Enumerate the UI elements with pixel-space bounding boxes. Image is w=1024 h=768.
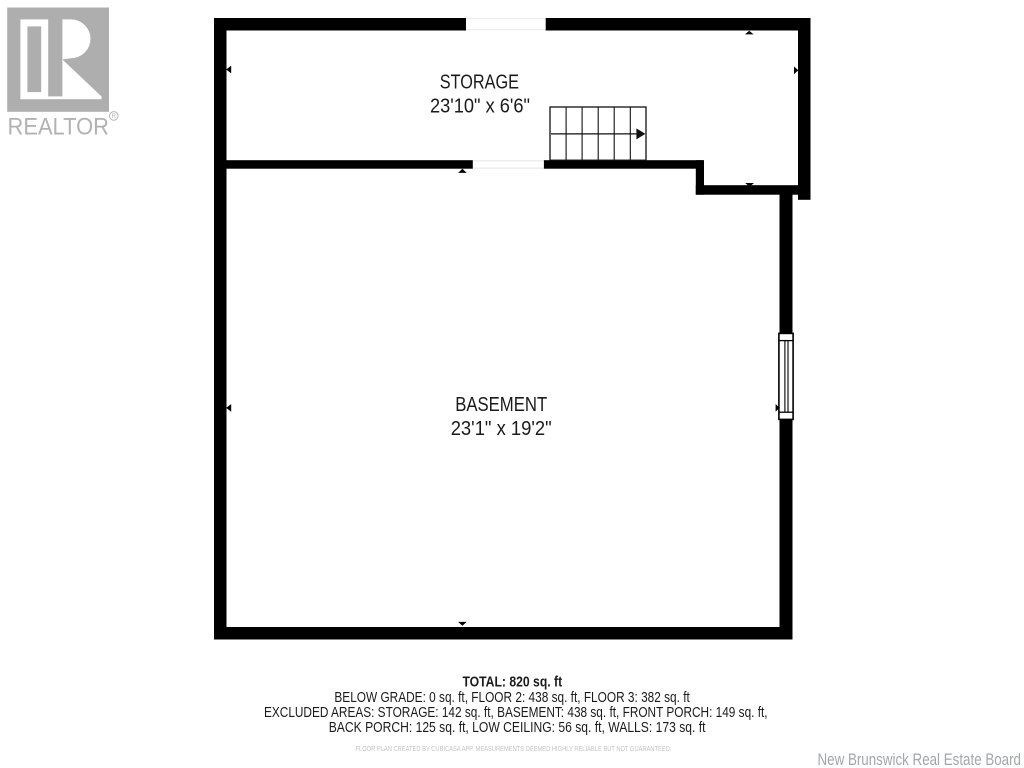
svg-text:23'10" x 6'6": 23'10" x 6'6" — [430, 96, 530, 118]
svg-text:BELOW GRADE: 0 sq. ft, FLOOR 2: BELOW GRADE: 0 sq. ft, FLOOR 2: 438 sq. … — [334, 690, 689, 706]
svg-text:BACK PORCH: 125 sq. ft, LOW CE: BACK PORCH: 125 sq. ft, LOW CEILING: 56 … — [329, 720, 706, 736]
svg-text:BASEMENT: BASEMENT — [455, 394, 547, 416]
svg-text:TOTAL: 820 sq. ft: TOTAL: 820 sq. ft — [462, 675, 562, 691]
svg-text:EXCLUDED AREAS: STORAGE: 142 s: EXCLUDED AREAS: STORAGE: 142 sq. ft, BAS… — [264, 705, 768, 721]
svg-text:STORAGE: STORAGE — [440, 72, 519, 94]
svg-text:New Brunswick Real Estate Boar: New Brunswick Real Estate Board — [818, 751, 1022, 768]
svg-text:REALTOR: REALTOR — [8, 114, 110, 141]
svg-text:R: R — [112, 114, 117, 120]
svg-text:FLOOR PLAN CREATED BY CUBICASA: FLOOR PLAN CREATED BY CUBICASA APP. MEAS… — [356, 746, 672, 753]
svg-text:23'1" x 19'2": 23'1" x 19'2" — [451, 418, 552, 440]
